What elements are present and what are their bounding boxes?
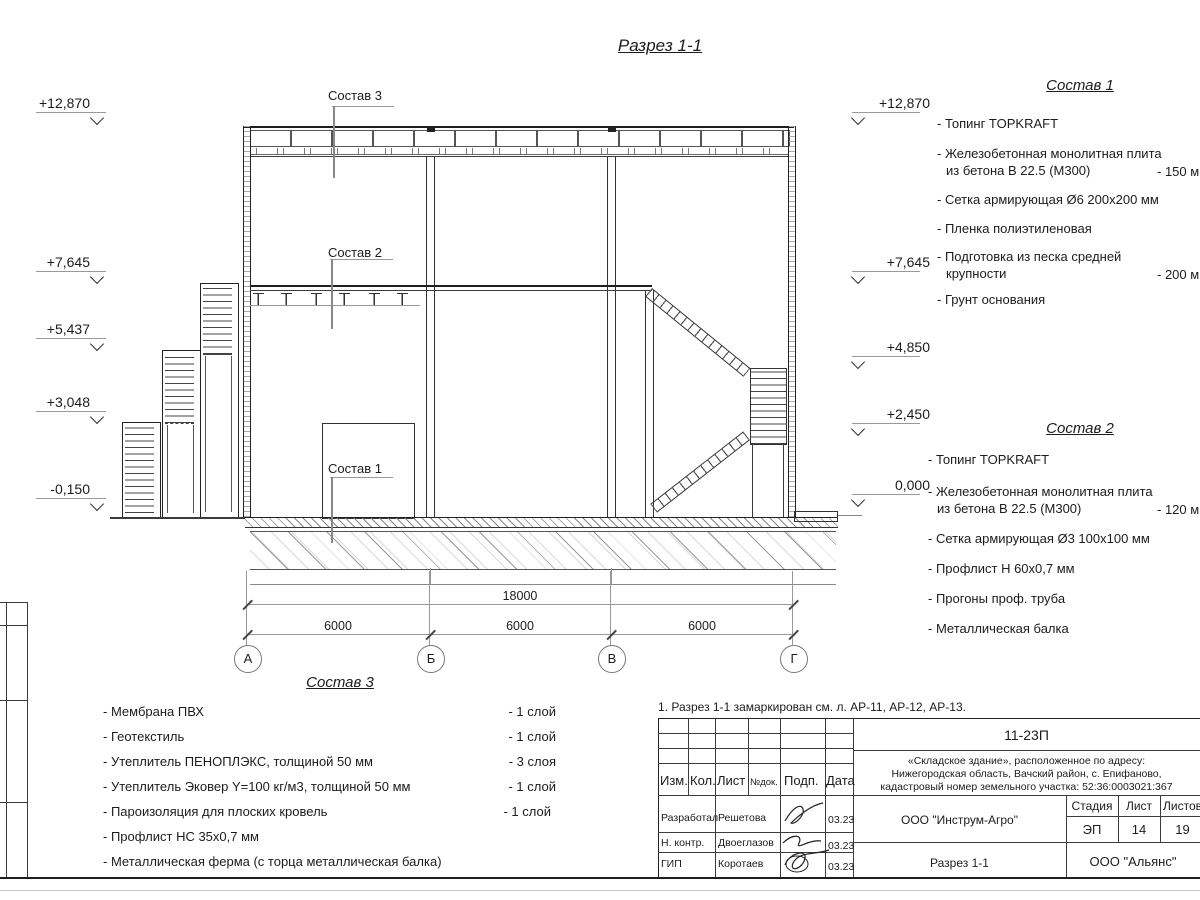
date-cell: 03.23 <box>828 814 854 826</box>
list-item: - Сетка армирующая Ø3 100х100 мм <box>928 531 1150 546</box>
stair-upper-flight <box>645 288 750 377</box>
titleblock-line <box>715 718 716 877</box>
list-item: - Геотекстиль <box>103 729 184 744</box>
landing-post <box>783 443 784 517</box>
elevation-line <box>852 271 920 272</box>
roof-decking-strip <box>250 148 788 155</box>
role-cell: Разработал <box>661 812 718 824</box>
sheets-label: Листов <box>1160 799 1200 813</box>
tower-shaft <box>167 425 194 513</box>
mezzanine-slab-bottom <box>250 290 652 291</box>
list-item-note: - 3 слоя <box>476 754 556 769</box>
col-ndok: №док. <box>750 777 778 788</box>
elevation-label: +2,450 <box>855 406 930 422</box>
louver-tower-tall <box>200 283 239 519</box>
ground-line-left <box>110 517 245 519</box>
dim-total-label: 18000 <box>470 589 570 603</box>
list-item: - Профлист Н 60х0,7 мм <box>928 561 1075 576</box>
titleblock-line <box>748 718 749 795</box>
list-item: - Профлист НС 35х0,7 мм <box>103 829 259 844</box>
landing-post <box>752 443 753 517</box>
elevation-arrow-icon <box>851 493 865 507</box>
callout-leader <box>330 259 393 260</box>
left-wall <box>243 126 251 517</box>
right-wall <box>788 126 796 517</box>
footing-joint <box>430 568 431 584</box>
drawing-note: 1. Разрез 1-1 замаркирован см. л. АР-11,… <box>658 700 966 714</box>
list-item: - Пленка полиэтиленовая <box>937 221 1092 236</box>
callout-leader <box>331 477 333 543</box>
tower-shaft <box>205 356 232 512</box>
dim-span-label: 6000 <box>288 619 388 633</box>
dim-line-spans <box>247 634 793 635</box>
doc-number: 11-23П <box>853 727 1200 743</box>
list-item: - Топинг TOPKRAFT <box>937 116 1058 131</box>
elevation-arrow-icon <box>851 422 865 436</box>
list-item: - Грунт основания <box>937 292 1045 307</box>
col-data: Дата <box>826 773 855 788</box>
dim-line-total <box>247 604 793 605</box>
elevation-arrow-icon <box>851 270 865 284</box>
axis-bubble: А <box>234 645 262 673</box>
stage-value: ЭП <box>1066 822 1118 837</box>
list-item-note: - 1 слой <box>476 779 556 794</box>
drawing-name: Разрез 1-1 <box>853 856 1066 870</box>
right-ledge <box>794 511 838 522</box>
elevation-label: -0,150 <box>30 481 90 497</box>
elevation-line <box>852 494 920 495</box>
sheets-value: 19 <box>1160 822 1200 837</box>
floor-slab-hatch <box>245 517 838 528</box>
elevation-line <box>852 112 920 113</box>
elevation-label: +5,437 <box>30 321 90 337</box>
role-cell: ГИП <box>661 858 682 870</box>
frame-line <box>6 602 7 877</box>
titleblock-line <box>1066 816 1200 817</box>
footing-band <box>250 568 836 585</box>
louver-slats <box>165 355 194 424</box>
callout-label: Состав 2 <box>305 245 405 260</box>
louver-slats <box>125 427 154 513</box>
list-item: - Топинг TOPKRAFT <box>928 452 1049 467</box>
col-izm: Изм. <box>660 773 688 788</box>
stair-lower-flight <box>650 431 750 512</box>
dim-span-label: 6000 <box>470 619 570 633</box>
stage-label: Стадия <box>1066 799 1118 813</box>
elevation-arrow-icon <box>90 497 104 511</box>
signature-icon <box>779 831 833 876</box>
roof-truss-band <box>250 130 790 147</box>
column-axis-b <box>426 157 435 517</box>
name-cell: Коротаев <box>718 858 763 870</box>
footing-joint <box>611 568 612 584</box>
list-item: - Железобетонная монолитная плита <box>928 484 1153 499</box>
axis-bubble: В <box>598 645 626 673</box>
elevation-arrow-icon <box>90 111 104 125</box>
elevation-arrow-icon <box>90 410 104 424</box>
list-item-note: - 120 м <box>1157 502 1199 517</box>
mezzanine-slab-top <box>250 285 652 287</box>
callout-label: Состав 1 <box>305 461 405 476</box>
list-item-note: - 150 м <box>1157 164 1199 179</box>
list-item: - Утеплитель ПЕНОПЛЭКС, толщиной 50 мм <box>103 754 373 769</box>
elevation-arrow-icon <box>851 111 865 125</box>
elevation-label: 0,000 <box>855 477 930 493</box>
elevation-arrow-icon <box>90 270 104 284</box>
page-title: Разрез 1-1 <box>560 36 760 56</box>
list-item: - Железобетонная монолитная плита <box>937 146 1162 161</box>
column-cap-mark <box>608 127 616 132</box>
name-cell: Решетова <box>718 812 766 824</box>
elevation-label: +12,870 <box>855 95 930 111</box>
sostav1-title: Состав 1 <box>1020 77 1140 94</box>
list-item: из бетона В 22.5 (М300) <box>946 163 1090 178</box>
elevation-arrow-icon <box>90 337 104 351</box>
list-item: - Пароизоляция для плоских кровель <box>103 804 327 819</box>
frame-line <box>0 802 27 803</box>
axis-bubble: Г <box>780 645 808 673</box>
roof-top-line <box>243 126 794 128</box>
list-item: крупности <box>946 266 1006 281</box>
list-item: - Металлическая ферма (с торца металличе… <box>103 854 442 869</box>
sheet-label: Лист <box>1118 799 1160 813</box>
elevation-line <box>852 423 920 424</box>
sheet-edge-line <box>0 890 1200 891</box>
elevation-label: +7,645 <box>30 254 90 270</box>
list-item: - Прогоны проф. труба <box>928 591 1065 606</box>
beam-underline <box>250 305 420 306</box>
frame-line <box>0 602 27 603</box>
dim-span-label: 6000 <box>652 619 752 633</box>
titleblock-line <box>853 750 1200 751</box>
elevation-label: +12,870 <box>30 95 90 111</box>
list-item: - Металлическая балка <box>928 621 1069 636</box>
elevation-label: +4,850 <box>855 339 930 355</box>
role-cell: Н. контр. <box>661 837 704 849</box>
titleblock-line <box>688 718 689 795</box>
org-name: ООО "Инструм-Агро" <box>853 813 1066 827</box>
foundation-hatch <box>250 531 836 570</box>
stair-column <box>645 290 654 517</box>
column-cap-mark <box>427 127 435 132</box>
axis-bubble: Б <box>417 645 445 673</box>
col-podp: Подп. <box>784 773 819 788</box>
list-item: - Подготовка из песка средней <box>937 249 1121 264</box>
callout-leader <box>331 259 333 329</box>
roof-bottom-line <box>250 156 788 157</box>
sostav2-title: Состав 2 <box>1020 420 1140 437</box>
frame-line <box>0 700 27 701</box>
name-cell: Двоеглазов <box>718 837 774 849</box>
list-item: - Утеплитель Эковер Y=100 кг/м3, толщино… <box>103 779 410 794</box>
list-item: - Сетка армирующая Ø6 200х200 мм <box>937 192 1159 207</box>
drawing-sheet: Разрез 1-1 +12,870 +7,645 +5,437 +3,048 … <box>0 0 1200 900</box>
column-axis-v <box>607 157 616 517</box>
address-line: кадастровый номер земельного участка: 52… <box>853 781 1200 793</box>
frame-line <box>0 625 27 626</box>
col-list: Лист <box>717 773 745 788</box>
louver-slats <box>203 288 232 355</box>
frame-bottom-line <box>0 877 1200 879</box>
list-item-note: - 200 м <box>1157 267 1199 282</box>
louver-tower-low <box>122 422 161 519</box>
address-line: Нижегородская область, Вачский район, с.… <box>853 768 1200 780</box>
signature-icon <box>783 799 825 829</box>
elevation-label: +3,048 <box>30 394 90 410</box>
elevation-arrow-icon <box>851 355 865 369</box>
list-item: из бетона В 22.5 (М300) <box>937 501 1081 516</box>
titleblock-line <box>853 842 1200 843</box>
address-line: «Складское здание», расположенное по адр… <box>853 755 1200 767</box>
list-item-note: - 1 слой <box>471 804 551 819</box>
col-kol: Кол. <box>690 773 716 788</box>
callout-label: Состав 3 <box>305 88 405 103</box>
list-item-note: - 1 слой <box>476 704 556 719</box>
sostav3-title: Состав 3 <box>280 674 400 691</box>
callout-leader <box>332 106 394 107</box>
callout-leader <box>333 106 335 178</box>
list-item: - Мембрана ПВХ <box>103 704 204 719</box>
sheet-value: 14 <box>1118 822 1160 837</box>
company-name: ООО "Альянс" <box>1066 854 1200 869</box>
list-item-note: - 1 слой <box>476 729 556 744</box>
ground-line-right <box>838 515 862 516</box>
callout-leader <box>330 477 393 478</box>
frame-line <box>27 602 28 877</box>
elevation-line <box>852 356 920 357</box>
stair-landing <box>750 368 787 445</box>
louver-tower-mid <box>162 350 201 519</box>
elevation-label: +7,645 <box>855 254 930 270</box>
